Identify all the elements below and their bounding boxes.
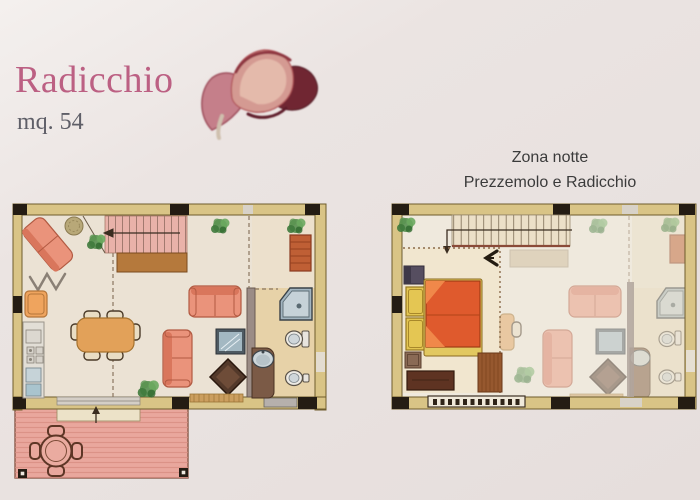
- wardrobe: [406, 287, 425, 350]
- ground-floor-plan: [13, 204, 326, 478]
- tv-unit: [216, 329, 245, 354]
- terrace-corner-marker: [179, 468, 188, 477]
- bathroom-sink: [252, 348, 274, 398]
- toilet: [286, 331, 310, 347]
- three-seat-sofa: [189, 286, 241, 317]
- side-window: [316, 352, 325, 372]
- nightstand: [404, 266, 424, 284]
- round-pouf: [65, 217, 83, 235]
- brochure-page: { "page": { "title": "Radicchio", "area_…: [0, 0, 700, 500]
- bedroom-rug: [478, 353, 502, 392]
- floor-plans-canvas: [0, 0, 700, 500]
- dresser: [407, 371, 454, 390]
- doormat: [190, 394, 243, 402]
- terrace-corner-marker: [18, 469, 27, 478]
- terrace: [15, 403, 188, 478]
- loveseat: [163, 330, 192, 387]
- mezzanine-railing: [428, 396, 525, 407]
- radicchio-flower-illustration: [202, 50, 318, 138]
- night-zone-plan: [392, 204, 696, 409]
- armchair: [25, 291, 47, 317]
- bathroom-window: [264, 398, 297, 407]
- kitchen-counter: [23, 322, 44, 398]
- runner-rug: [290, 235, 311, 271]
- double-bed: [424, 279, 482, 356]
- stool: [405, 352, 421, 368]
- faded-partition-wall: [627, 282, 634, 397]
